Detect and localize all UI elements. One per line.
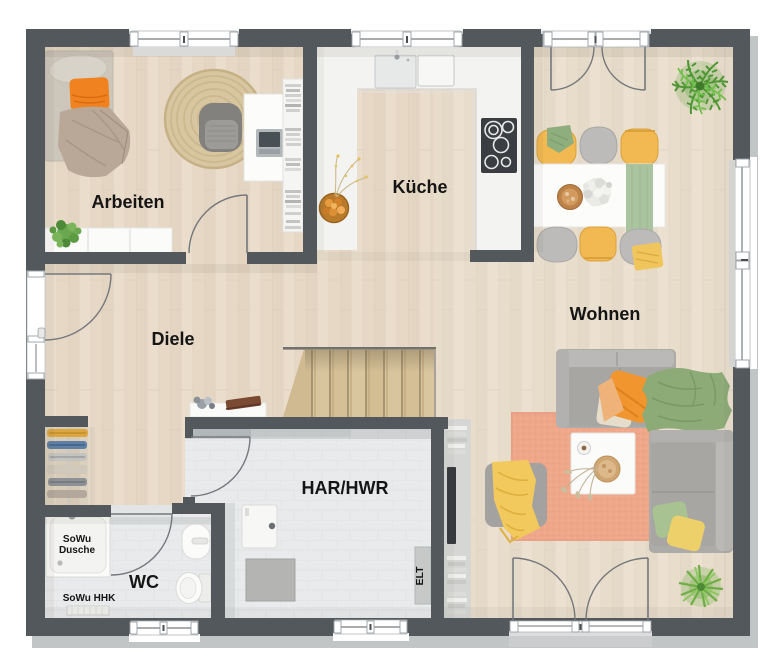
svg-text:HAR/HWR: HAR/HWR bbox=[302, 478, 389, 498]
svg-text:WC: WC bbox=[129, 572, 159, 592]
svg-text:Diele: Diele bbox=[151, 329, 194, 349]
svg-text:SoWu HHK: SoWu HHK bbox=[63, 593, 116, 604]
svg-text:Arbeiten: Arbeiten bbox=[91, 192, 164, 212]
svg-text:ELT: ELT bbox=[414, 566, 426, 586]
svg-text:Küche: Küche bbox=[392, 177, 447, 197]
svg-text:SoWu: SoWu bbox=[63, 534, 91, 545]
svg-text:Wohnen: Wohnen bbox=[570, 304, 641, 324]
svg-text:Dusche: Dusche bbox=[59, 545, 96, 556]
